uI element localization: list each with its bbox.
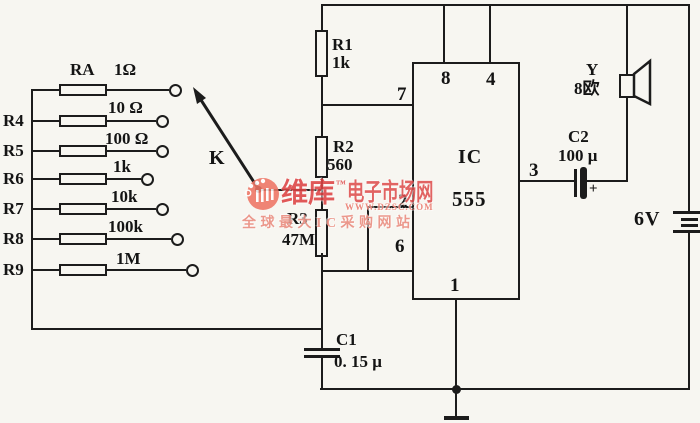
circuit-diagram: RA 1Ω R4 10 Ω R5 100 Ω R6 1k R7 10k R8 1…: [0, 0, 700, 423]
r5-left-lead: [32, 150, 59, 152]
ic-name-label: IC: [458, 147, 482, 167]
r4-resistor-body: [59, 115, 107, 127]
r4-left-lead: [32, 120, 59, 122]
r1-resistor-body: [315, 30, 328, 77]
r4-name-label: R4: [3, 112, 24, 129]
c1-top-plate: [304, 348, 340, 351]
switch-arrow: [193, 87, 259, 190]
ra-resistor-body: [59, 84, 107, 96]
ground-junction-dot: [452, 385, 461, 394]
r7-name-label: R7: [3, 200, 24, 217]
speaker-top-wire: [626, 4, 628, 75]
battery-plate-short-2: [681, 224, 698, 227]
r4-value-label: 10 Ω: [108, 99, 143, 116]
battery-plate-long-top: [673, 211, 700, 214]
c1-value-label: 0. 15 μ: [334, 353, 382, 370]
pin4-stub-wire: [489, 4, 491, 62]
bottom-rail-wire: [320, 388, 690, 390]
r5-terminal: [156, 145, 169, 158]
r7-right-lead: [107, 208, 156, 210]
speaker-cone: [634, 61, 650, 104]
pin3-wire: [518, 180, 575, 182]
r6-right-lead: [107, 178, 141, 180]
r7-left-lead: [32, 208, 59, 210]
ic-pin7-label: 7: [397, 85, 407, 104]
r6-terminal: [141, 173, 154, 186]
r1-value-label: 1k: [332, 54, 350, 71]
r4-right-lead: [107, 120, 156, 122]
c1-bottom-wire: [321, 358, 323, 389]
watermark-brand-text: 维库: [281, 180, 335, 207]
r6-name-label: R6: [3, 170, 24, 187]
ic-pin1-label: 1: [450, 276, 460, 295]
r2-name-label: R2: [333, 138, 354, 155]
r6-value-label: 1k: [113, 158, 131, 175]
switch-label: K: [209, 148, 226, 168]
r7-terminal: [156, 203, 169, 216]
r8-terminal: [171, 233, 184, 246]
r9-right-lead: [107, 269, 186, 271]
r9-left-lead: [32, 269, 59, 271]
right-edge-wire-upper: [688, 4, 690, 212]
battery-plate-short-1: [681, 218, 698, 221]
ra-value-label: 1Ω: [114, 61, 136, 78]
r9-name-label: R9: [3, 261, 24, 278]
pin1-wire: [455, 298, 457, 418]
r1-name-label: R1: [332, 36, 353, 53]
watermark-tm-mark: ™: [336, 180, 346, 190]
ic-pin8-label: 8: [441, 69, 451, 88]
r3-value-label: 47M: [282, 231, 315, 248]
speaker-value-label: 8欧: [574, 80, 600, 97]
c1-name-label: C1: [336, 331, 357, 348]
watermark-url: WWW.DZSC.COM: [345, 202, 434, 212]
ic-pin4-label: 4: [486, 70, 496, 89]
r5-value-label: 100 Ω: [105, 130, 148, 147]
r4-terminal: [156, 115, 169, 128]
r5-right-lead: [107, 150, 156, 152]
ic-pin6-label: 6: [395, 237, 405, 256]
r8-left-lead: [32, 238, 59, 240]
watermark-slogan: 全球最大IC采购网站: [242, 212, 415, 232]
r7-value-label: 10k: [111, 188, 137, 205]
c2-right-plate: [580, 167, 587, 199]
r9-terminal: [186, 264, 199, 277]
r2-value-label: 560: [327, 156, 353, 173]
speaker-name-label: Y: [586, 61, 598, 78]
r6-resistor-body: [59, 173, 107, 185]
right-edge-wire-lower: [688, 233, 690, 390]
c2-polarity-label: +: [589, 182, 598, 197]
battery-value-label: 6V: [634, 209, 660, 229]
r9-value-label: 1M: [116, 250, 141, 267]
r1-top-wire: [321, 4, 323, 31]
ra-name-label: RA: [70, 61, 95, 78]
r8-value-label: 100k: [108, 218, 143, 235]
ic-pin3-label: 3: [529, 161, 539, 180]
top-rail-wire: [321, 4, 690, 6]
r3-bottom-wire: [321, 253, 323, 348]
r8-right-lead: [107, 238, 171, 240]
r5-resistor-body: [59, 145, 107, 157]
r9-resistor-body: [59, 264, 107, 276]
r6-left-lead: [32, 178, 59, 180]
r1-bottom-wire: [321, 76, 323, 137]
r8-name-label: R8: [3, 230, 24, 247]
battery-plate-long-bottom: [673, 230, 700, 233]
c2-value-label: 100 μ: [558, 147, 597, 164]
r5-name-label: R5: [3, 142, 24, 159]
r8-resistor-body: [59, 233, 107, 245]
pin6-wire: [321, 270, 412, 272]
ra-left-lead: [32, 89, 59, 91]
c2-name-label: C2: [568, 128, 589, 145]
ra-terminal: [169, 84, 182, 97]
r7-resistor-body: [59, 203, 107, 215]
speaker-body: [619, 74, 635, 98]
speaker-bottom-wire: [626, 96, 628, 182]
pin8-stub-wire: [443, 4, 445, 62]
c2-left-plate: [574, 169, 577, 197]
ra-right-lead: [107, 89, 169, 91]
ladder-bottom-wire: [31, 328, 322, 330]
ground-bar: [444, 416, 469, 420]
